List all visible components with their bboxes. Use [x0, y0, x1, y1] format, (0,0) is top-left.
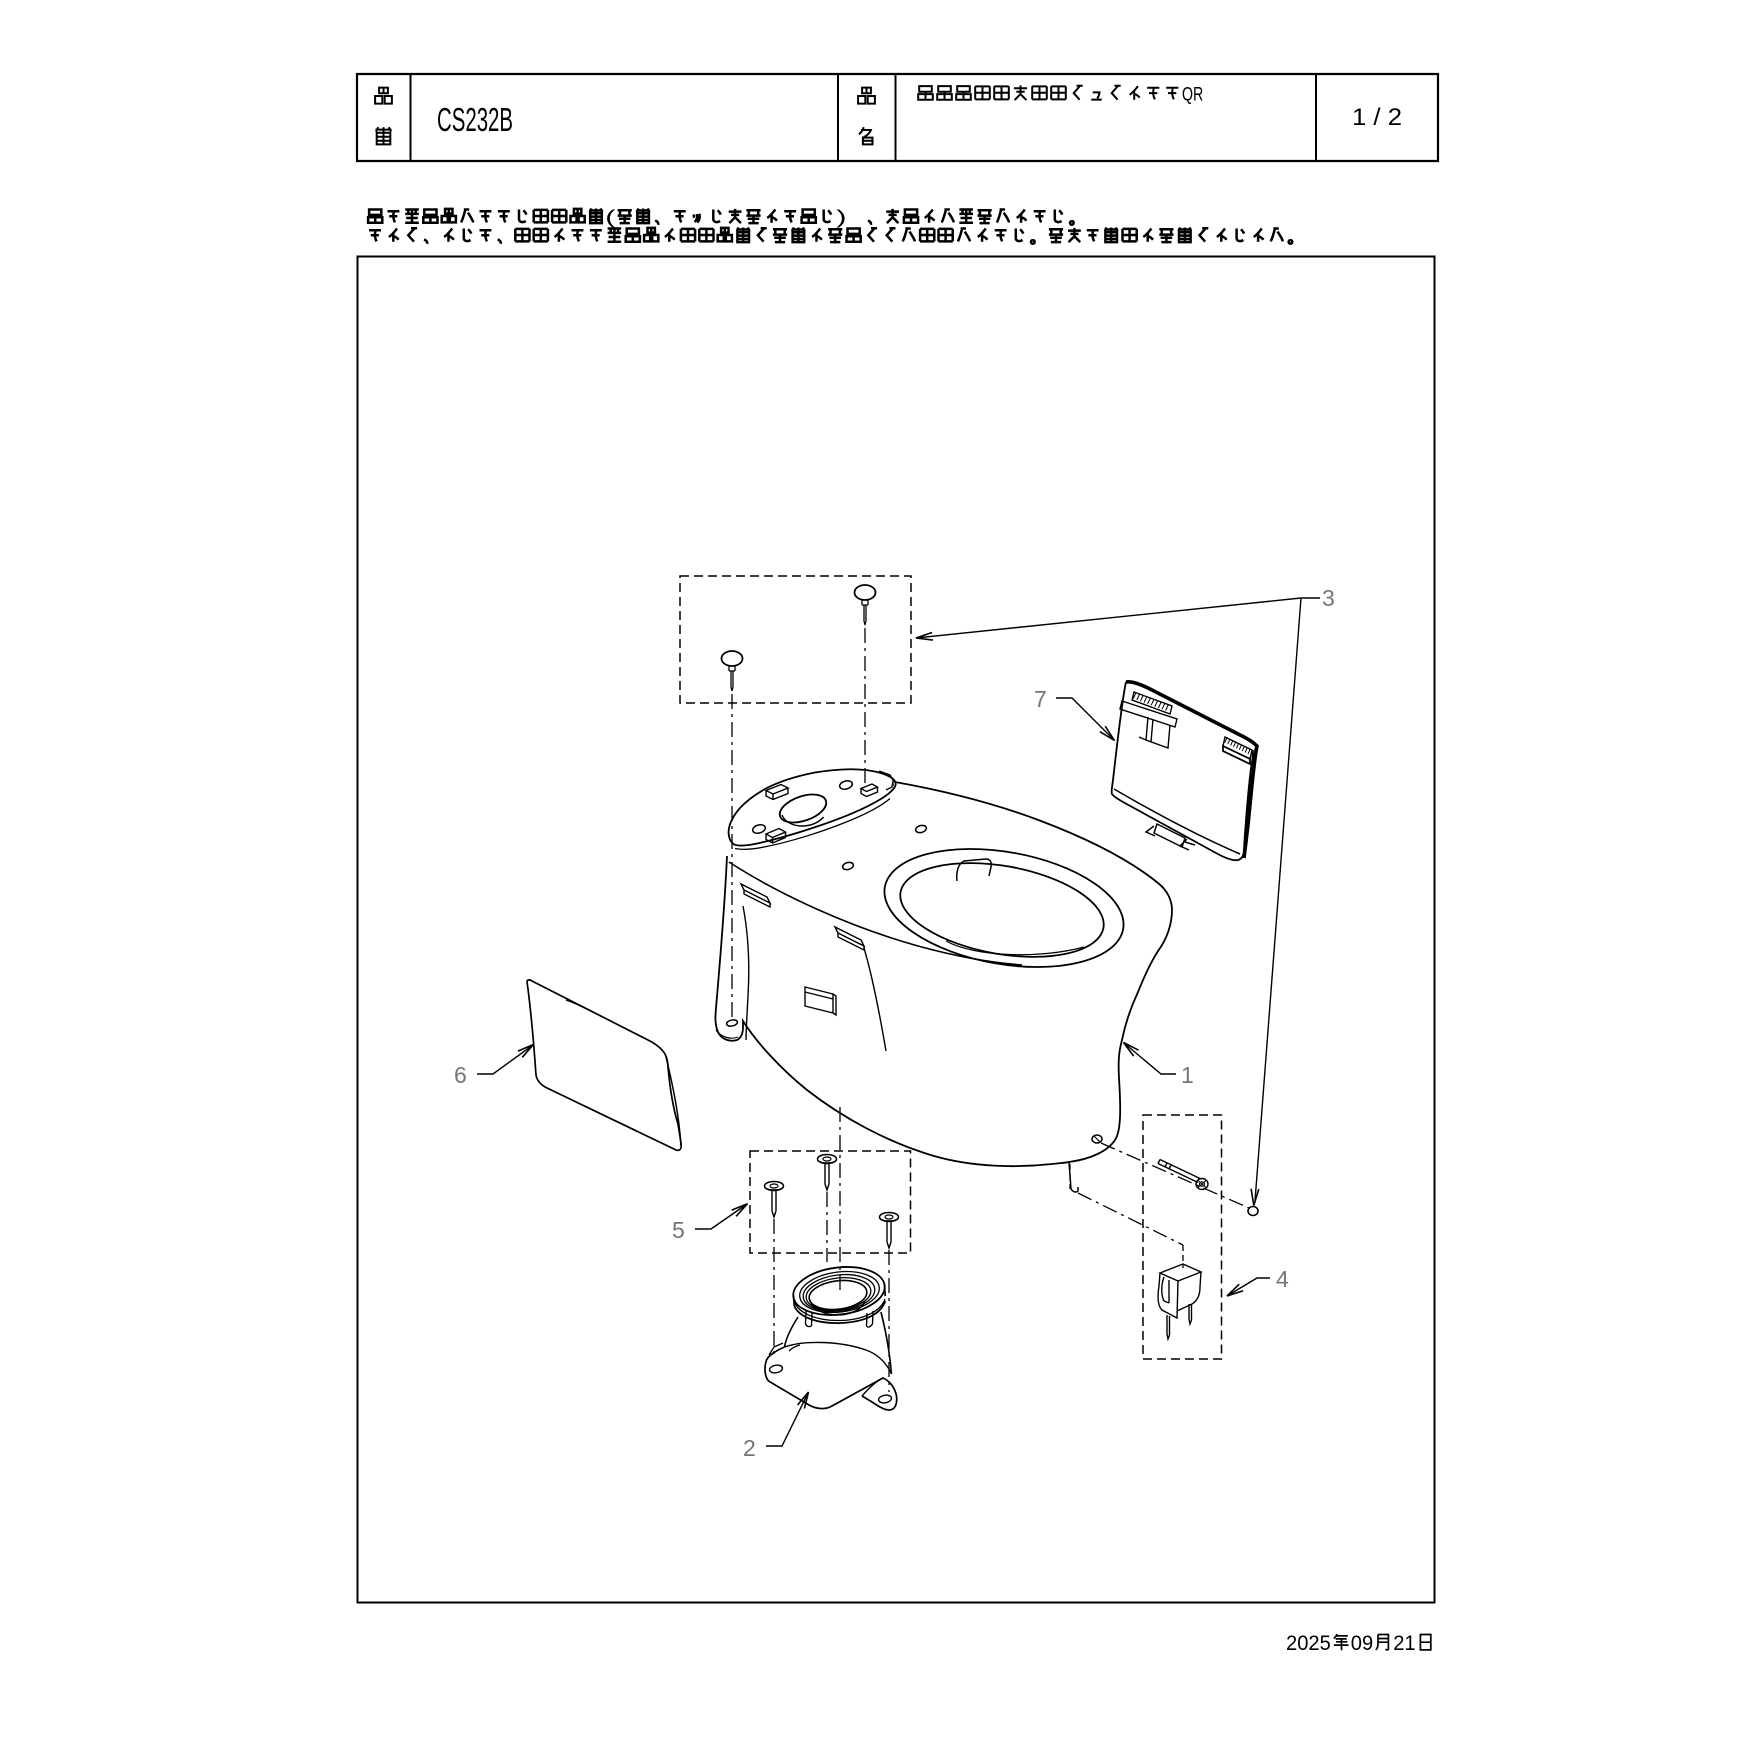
svg-text:5: 5: [672, 1217, 685, 1243]
svg-text:4: 4: [1276, 1266, 1289, 1292]
svg-text:2: 2: [743, 1435, 756, 1461]
svg-text:CS232B: CS232B: [437, 101, 513, 138]
svg-text:21: 21: [1393, 1632, 1415, 1655]
svg-text:1 / 2: 1 / 2: [1352, 104, 1402, 131]
svg-text:1: 1: [1181, 1062, 1194, 1088]
svg-text:09: 09: [1351, 1632, 1373, 1655]
svg-text:3: 3: [1322, 585, 1335, 611]
svg-text:2025: 2025: [1286, 1632, 1331, 1655]
svg-text:(: (: [605, 207, 616, 228]
svg-text:6: 6: [454, 1062, 467, 1088]
svg-text:QR: QR: [1182, 83, 1203, 105]
svg-text:7: 7: [1034, 686, 1047, 712]
svg-text:): ): [836, 207, 846, 228]
